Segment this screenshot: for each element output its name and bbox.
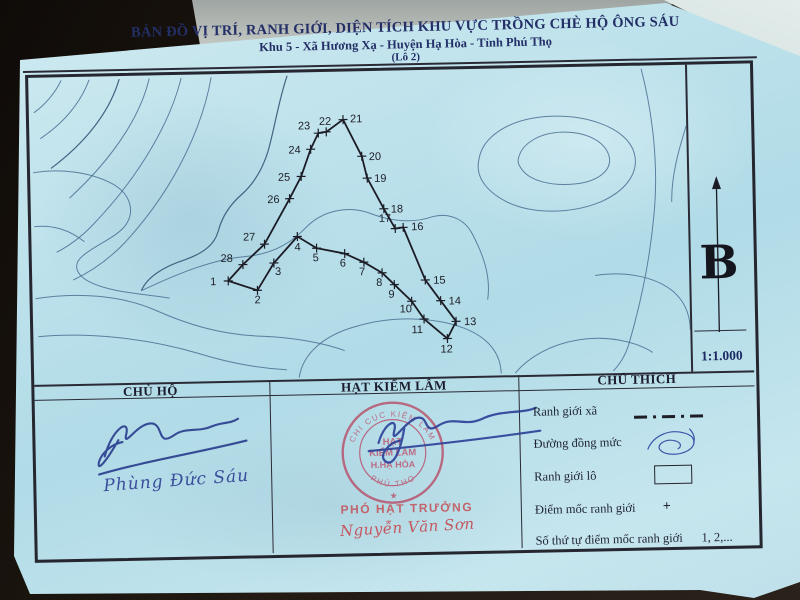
point-number-label: 8 bbox=[376, 277, 382, 289]
legend-symbol-text: 1, 2,... bbox=[701, 530, 733, 557]
map-drawing: 1234567891011121314151617181920212223242… bbox=[31, 68, 691, 383]
legend-item-label: Đường đồng mức bbox=[533, 435, 622, 452]
legend-symbol-plus: + bbox=[663, 499, 672, 525]
point-number-label: 24 bbox=[288, 144, 300, 156]
contour-line bbox=[33, 80, 62, 113]
dashdot-segment bbox=[662, 415, 675, 418]
legend-item-label: Điểm mốc ranh giới bbox=[535, 501, 636, 518]
boundary-marker-crosses bbox=[220, 113, 461, 348]
point-number-label: 20 bbox=[369, 151, 381, 163]
point-number-label: 12 bbox=[440, 343, 452, 355]
contour-line bbox=[137, 76, 291, 291]
point-number-label: 27 bbox=[243, 231, 255, 243]
point-number-label: 17 bbox=[379, 213, 391, 225]
point-number-label: 4 bbox=[294, 241, 300, 253]
scanned-map-photo: BẢN ĐỒ VỊ TRÍ, RANH GIỚI, DIỆN TÍCH KHU … bbox=[0, 0, 800, 600]
point-number-label: 11 bbox=[411, 324, 423, 336]
legend-symbol-rect bbox=[654, 462, 693, 489]
legend-item: Ranh giới xã bbox=[519, 397, 756, 428]
point-number-label: 2 bbox=[254, 294, 260, 306]
contour-line bbox=[33, 169, 170, 301]
point-number-label: 1 bbox=[210, 276, 216, 288]
map-scale: 1:1.000 bbox=[689, 347, 755, 364]
contour-line bbox=[670, 126, 688, 202]
contour-line bbox=[518, 131, 610, 185]
point-number-label: 16 bbox=[411, 221, 423, 233]
contour-line bbox=[607, 68, 659, 371]
contour-line bbox=[36, 290, 345, 357]
contour-line bbox=[34, 225, 84, 242]
point-number-label: 28 bbox=[220, 253, 232, 265]
contour-line bbox=[39, 80, 90, 139]
point-number-label: 19 bbox=[374, 173, 386, 185]
contour-line bbox=[38, 331, 287, 375]
legend-item-label: Ranh giới xã bbox=[533, 404, 598, 420]
point-number-label: 6 bbox=[340, 258, 346, 270]
contour-line bbox=[477, 115, 636, 213]
contour-doodle bbox=[645, 425, 698, 460]
dashdot-segment bbox=[690, 414, 703, 417]
legend-item-label: Số thứ tự điểm mốc ranh giới bbox=[535, 531, 683, 549]
point-number-label: 7 bbox=[359, 266, 365, 278]
dashdot-segment bbox=[681, 415, 684, 418]
point-number-label: 26 bbox=[267, 194, 279, 206]
contour-line bbox=[595, 272, 690, 331]
stamp-star-icon: ★ bbox=[389, 491, 397, 501]
legend-item: Số thứ tự điểm mốc ranh giới1, 2,... bbox=[521, 526, 758, 557]
legend-item: Đường đồng mức bbox=[519, 429, 756, 460]
legend-symbol-contour bbox=[645, 425, 698, 452]
point-number-label: 18 bbox=[391, 203, 403, 215]
contour-line bbox=[514, 337, 653, 373]
lot-boundary-box bbox=[654, 465, 692, 485]
dashdot-segment bbox=[634, 415, 647, 418]
point-number-label: 10 bbox=[400, 303, 412, 315]
point-number-label: 25 bbox=[278, 172, 290, 184]
legend-item: Ranh giới lô bbox=[520, 462, 757, 493]
point-number-label: 23 bbox=[298, 120, 310, 132]
point-number-label: 3 bbox=[275, 266, 281, 278]
point-number-label: 5 bbox=[313, 252, 319, 264]
contour-line bbox=[67, 78, 151, 198]
point-number-label: 22 bbox=[319, 116, 331, 128]
point-number-label: 21 bbox=[350, 113, 362, 125]
legend: Ranh giới xãĐường đồng mứcRanh giới lôĐi… bbox=[518, 385, 758, 548]
dashdot-segment bbox=[653, 415, 656, 418]
map-document: BẢN ĐỒ VỊ TRÍ, RANH GIỚI, DIỆN TÍCH KHU … bbox=[22, 7, 769, 588]
point-number-label: 9 bbox=[388, 289, 394, 301]
point-number-label: 14 bbox=[449, 295, 461, 307]
contour-line bbox=[53, 78, 184, 253]
point-number-label: 15 bbox=[433, 275, 445, 287]
north-label: B bbox=[686, 235, 751, 288]
legend-item: Điểm mốc ranh giới+ bbox=[521, 495, 758, 526]
point-number-label: 13 bbox=[464, 316, 476, 328]
legend-item-label: Ranh giới lô bbox=[534, 469, 596, 485]
